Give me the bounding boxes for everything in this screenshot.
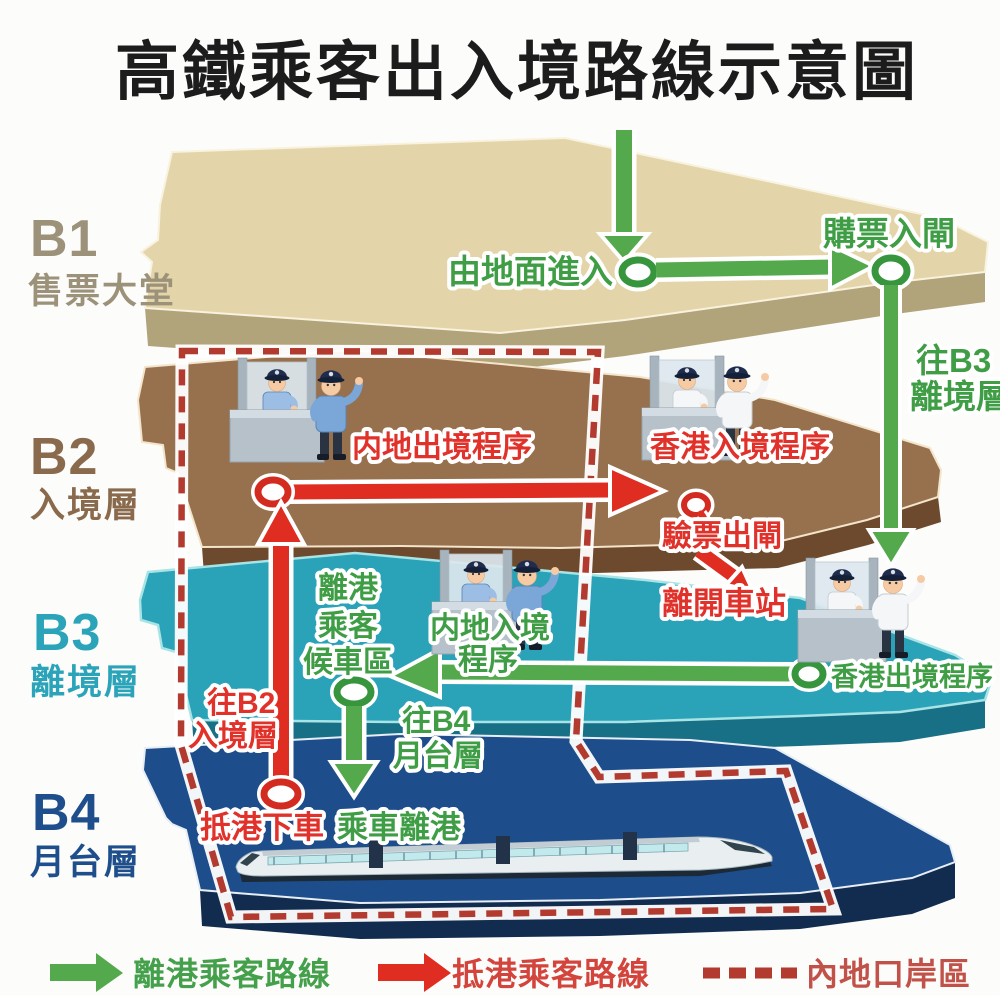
train-car-joint — [496, 836, 510, 864]
legend-departing-label: 離港乘客路線 — [133, 956, 331, 992]
label-to-b3-line1: 往B3 — [916, 342, 991, 379]
level-b3-name: 離境層 — [30, 663, 141, 702]
label-to-b3-line2: 離境層 — [910, 378, 1000, 415]
level-b2-name: 入境層 — [30, 486, 141, 525]
label-to-b2-line1: 往B2 — [207, 687, 275, 720]
route-node-icon — [795, 663, 823, 685]
label-enter-from-ground: 由地面進入 — [448, 253, 613, 290]
label-hk-exit-procedure: 香港出境程序 — [831, 661, 993, 692]
legend-arriving-label: 抵港乘客路線 — [452, 956, 650, 992]
booth-pillar — [650, 356, 659, 414]
label-mainland-entry-line1: 内地入境 — [430, 611, 550, 645]
level-b4-name: 月台層 — [30, 843, 141, 882]
label-arrive-alight: 抵港下車 — [200, 810, 324, 845]
label-waiting-line3: 候車區 — [303, 646, 393, 679]
level-b3-id: B3 — [33, 604, 101, 662]
label-to-b4-line1: 往B4 — [402, 705, 471, 738]
label-leave-station: 離開車站 — [662, 586, 786, 621]
level-b2-id: B2 — [30, 428, 98, 486]
label-waiting-line2: 乘客 — [318, 609, 378, 643]
level-b4-label: B4 月台層 — [30, 784, 141, 882]
legend-port-area-label: 內地口岸區 — [806, 956, 971, 992]
booth-pillar — [440, 550, 449, 608]
level-b4-id: B4 — [32, 784, 100, 842]
legend: 離港乘客路線 抵港乘客路線 內地口岸區 — [50, 953, 971, 992]
label-buy-ticket-enter-gate: 購票入閘 — [823, 215, 955, 252]
booth-pillar — [238, 358, 247, 416]
label-ticket-check-exit-gate: 驗票出閘 — [662, 519, 782, 553]
route-node-icon — [337, 680, 371, 704]
level-b1-id: B1 — [30, 210, 98, 268]
level-b2-label: B2 入境層 — [30, 428, 141, 525]
label-to-b4-line2: 月台層 — [393, 739, 483, 773]
diagram-root: 高鐵乘客出入境路線示意圖 — [0, 0, 1000, 995]
label-mainland-entry-line2: 程序 — [458, 643, 518, 677]
legend-green-arrow-icon — [50, 953, 123, 992]
route-node-icon — [258, 480, 288, 504]
label-waiting-line1: 離港 — [318, 571, 379, 605]
label-to-b2-line2: 入境層 — [188, 719, 278, 753]
legend-red-arrow-icon — [378, 953, 451, 992]
train-car-joint — [623, 832, 637, 860]
route-node-icon — [622, 260, 654, 284]
route-node-icon — [264, 782, 298, 806]
label-hk-entry-procedure: 香港入境程序 — [650, 430, 830, 464]
level-b3-label: B3 離境層 — [30, 604, 141, 702]
page-title: 高鐵乘客出入境路線示意圖 — [115, 37, 919, 108]
level-b1-name: 售票大堂 — [28, 272, 176, 311]
route-node-icon — [875, 258, 907, 284]
booth-pillar — [806, 558, 815, 616]
label-board-depart: 乘車離港 — [337, 810, 462, 845]
label-mainland-exit-procedure: 内地出境程序 — [352, 430, 532, 464]
